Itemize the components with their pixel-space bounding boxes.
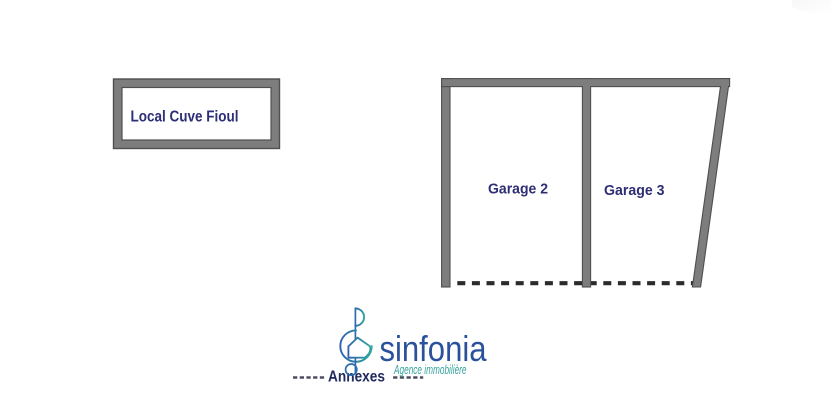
svg-text:Agence immobilière: Agence immobilière <box>393 362 466 377</box>
svg-text:Garage 3: Garage 3 <box>604 183 665 199</box>
svg-text:Local Cuve Fioul: Local Cuve Fioul <box>131 109 239 126</box>
svg-text:Garage 2: Garage 2 <box>488 182 548 198</box>
